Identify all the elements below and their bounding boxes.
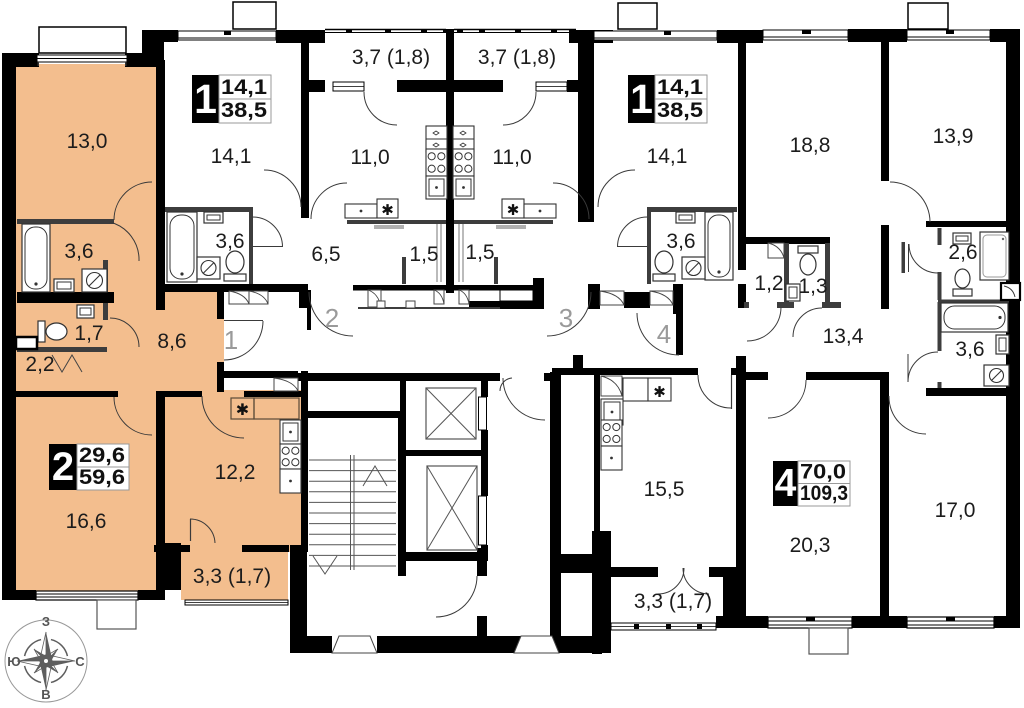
svg-text:17,0: 17,0 xyxy=(935,499,976,522)
svg-text:1,2: 1,2 xyxy=(754,272,783,295)
svg-text:✱: ✱ xyxy=(653,384,666,401)
svg-text:8,6: 8,6 xyxy=(157,330,186,353)
svg-text:13,9: 13,9 xyxy=(933,125,974,148)
svg-text:2: 2 xyxy=(52,445,74,489)
svg-text:2,2: 2,2 xyxy=(25,353,54,376)
svg-text:З: З xyxy=(42,614,50,629)
svg-text:38,5: 38,5 xyxy=(657,99,703,122)
svg-text:109,3: 109,3 xyxy=(800,482,848,505)
svg-text:70,0: 70,0 xyxy=(800,461,846,484)
svg-text:12,2: 12,2 xyxy=(215,461,256,484)
svg-text:3,6: 3,6 xyxy=(666,230,695,253)
svg-text:✱: ✱ xyxy=(236,402,249,419)
svg-text:4: 4 xyxy=(775,462,797,505)
svg-text:16,6: 16,6 xyxy=(66,510,107,533)
svg-text:6,5: 6,5 xyxy=(311,243,340,266)
svg-text:✱: ✱ xyxy=(381,202,394,219)
svg-text:3,6: 3,6 xyxy=(64,240,93,263)
svg-text:3,3 (1,7): 3,3 (1,7) xyxy=(193,565,271,588)
svg-text:С: С xyxy=(75,654,85,669)
svg-text:3: 3 xyxy=(559,303,573,333)
svg-text:1: 1 xyxy=(194,76,217,122)
svg-text:3,6: 3,6 xyxy=(215,230,244,253)
svg-text:15,5: 15,5 xyxy=(644,478,685,501)
svg-text:20,3: 20,3 xyxy=(790,534,831,557)
svg-text:59,6: 59,6 xyxy=(79,466,125,489)
svg-text:2: 2 xyxy=(325,303,339,333)
svg-text:14,1: 14,1 xyxy=(657,76,703,99)
svg-text:Ю: Ю xyxy=(7,654,20,669)
svg-text:11,0: 11,0 xyxy=(350,146,389,169)
svg-text:14,1: 14,1 xyxy=(647,145,688,168)
svg-text:1: 1 xyxy=(224,325,238,355)
svg-text:4: 4 xyxy=(657,319,671,349)
svg-text:11,0: 11,0 xyxy=(492,146,531,169)
svg-text:18,8: 18,8 xyxy=(790,134,831,157)
svg-text:38,5: 38,5 xyxy=(221,99,267,122)
svg-text:3,7 (1,8): 3,7 (1,8) xyxy=(478,46,556,69)
svg-text:14,1: 14,1 xyxy=(211,145,252,168)
svg-text:1,7: 1,7 xyxy=(74,322,103,345)
svg-text:3,3 (1,7): 3,3 (1,7) xyxy=(634,590,712,613)
svg-text:2,6: 2,6 xyxy=(948,241,977,264)
svg-text:1: 1 xyxy=(630,76,653,122)
svg-text:13,4: 13,4 xyxy=(823,325,864,348)
svg-text:1,5: 1,5 xyxy=(409,243,438,266)
svg-text:В: В xyxy=(41,687,50,702)
svg-text:✱: ✱ xyxy=(507,202,520,219)
svg-text:29,6: 29,6 xyxy=(79,444,125,467)
svg-text:3,6: 3,6 xyxy=(955,338,984,361)
svg-text:14,1: 14,1 xyxy=(221,76,267,99)
svg-text:1,5: 1,5 xyxy=(465,241,494,264)
svg-text:13,0: 13,0 xyxy=(67,130,108,153)
svg-text:1,3: 1,3 xyxy=(798,275,827,298)
svg-text:3,7 (1,8): 3,7 (1,8) xyxy=(352,46,430,69)
